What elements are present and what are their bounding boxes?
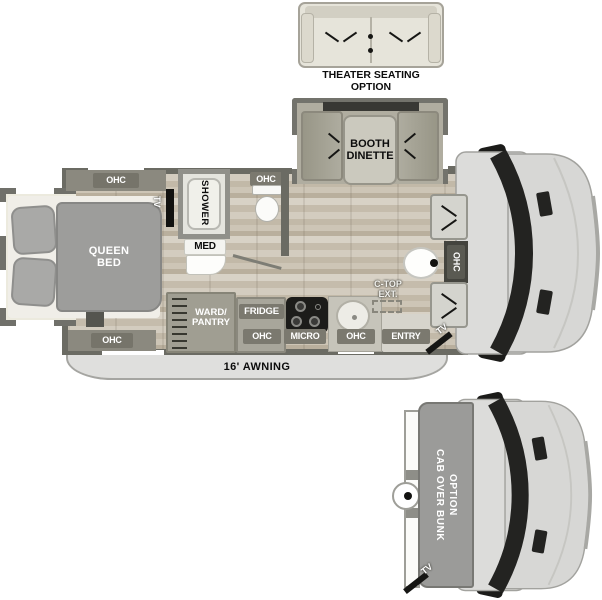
sofa-seat-divider (370, 17, 372, 63)
cab-seat (430, 282, 468, 328)
window (292, 135, 297, 169)
ohc-cabinet-bottom: OHC (68, 330, 156, 351)
wardrobe-label: WARD/ PANTRY (186, 308, 236, 329)
window (16, 320, 54, 326)
ohc-cabinet-top: OHC (66, 170, 166, 191)
ohc-label: OHC (250, 172, 282, 186)
tv-label: TV (152, 196, 162, 208)
tv-screen (166, 189, 174, 227)
cab-front (452, 142, 602, 364)
wall-notch (406, 470, 418, 480)
awning: 16' AWNING (66, 352, 448, 380)
sink (336, 300, 370, 332)
toilet-bowl (255, 196, 279, 222)
shower-label: SHOWER (199, 180, 210, 230)
dinette-window-band (323, 102, 419, 111)
window (16, 188, 54, 194)
fridge-label: FRIDGE (239, 304, 284, 319)
recliner-dot (368, 48, 373, 53)
ohc-label: OHC (243, 329, 281, 344)
sofa-armrest-right (428, 13, 441, 63)
ohc-label: OHC (93, 173, 139, 188)
shower: SHOWER (178, 169, 230, 239)
ohc-label: OHC (337, 329, 375, 344)
theater-seating-label: THEATER SEATING OPTION (298, 70, 444, 93)
nightstand (86, 312, 104, 327)
burner (309, 316, 320, 327)
dinette-table: BOOTH DINETTE (343, 115, 397, 185)
ohc-label: OHC (91, 333, 133, 348)
burner (291, 316, 302, 327)
recliner-dot (368, 34, 373, 39)
awning-label: 16' AWNING (224, 361, 291, 373)
dinette-slideout: BOOTH DINETTE (292, 98, 448, 184)
window (0, 202, 6, 236)
hitch-pin (404, 492, 412, 500)
dinette-bench-left (301, 111, 343, 181)
countertop-ext (372, 300, 402, 313)
ohc-label: OHC (447, 245, 465, 279)
bunk-label: CAB OVER BUNK OPTION (433, 449, 459, 541)
micro-label: MICRO (284, 329, 326, 344)
theater-seating-sofa (298, 2, 444, 68)
stove-knob (315, 304, 321, 310)
dinette-bench-right (397, 111, 439, 181)
wardrobe-pantry: WARD/ PANTRY (166, 292, 236, 353)
hanger-rod (172, 298, 187, 349)
cab-over-bunk: CAB OVER BUNK OPTION (418, 402, 474, 588)
sofa-armrest-left (301, 13, 314, 63)
window (0, 270, 6, 308)
toilet-tank (252, 185, 282, 195)
countertop-ext-label: C-TOP EXT. (368, 280, 408, 300)
med-cabinet: MED (184, 239, 226, 255)
entry-label: ENTRY (382, 329, 430, 344)
queen-bed: QUEEN BED (56, 202, 162, 312)
sink-drain (352, 315, 357, 320)
window (443, 135, 448, 169)
cab-seat (430, 194, 468, 240)
stove (286, 297, 328, 333)
burner (295, 301, 306, 312)
bath-wall (281, 168, 289, 256)
bed-pillow (10, 257, 57, 308)
bed-pillow (10, 205, 57, 256)
table-post (430, 259, 438, 267)
floorplan-canvas: THEATER SEATING OPTION 16' AWNING BOOTH … (0, 0, 602, 600)
